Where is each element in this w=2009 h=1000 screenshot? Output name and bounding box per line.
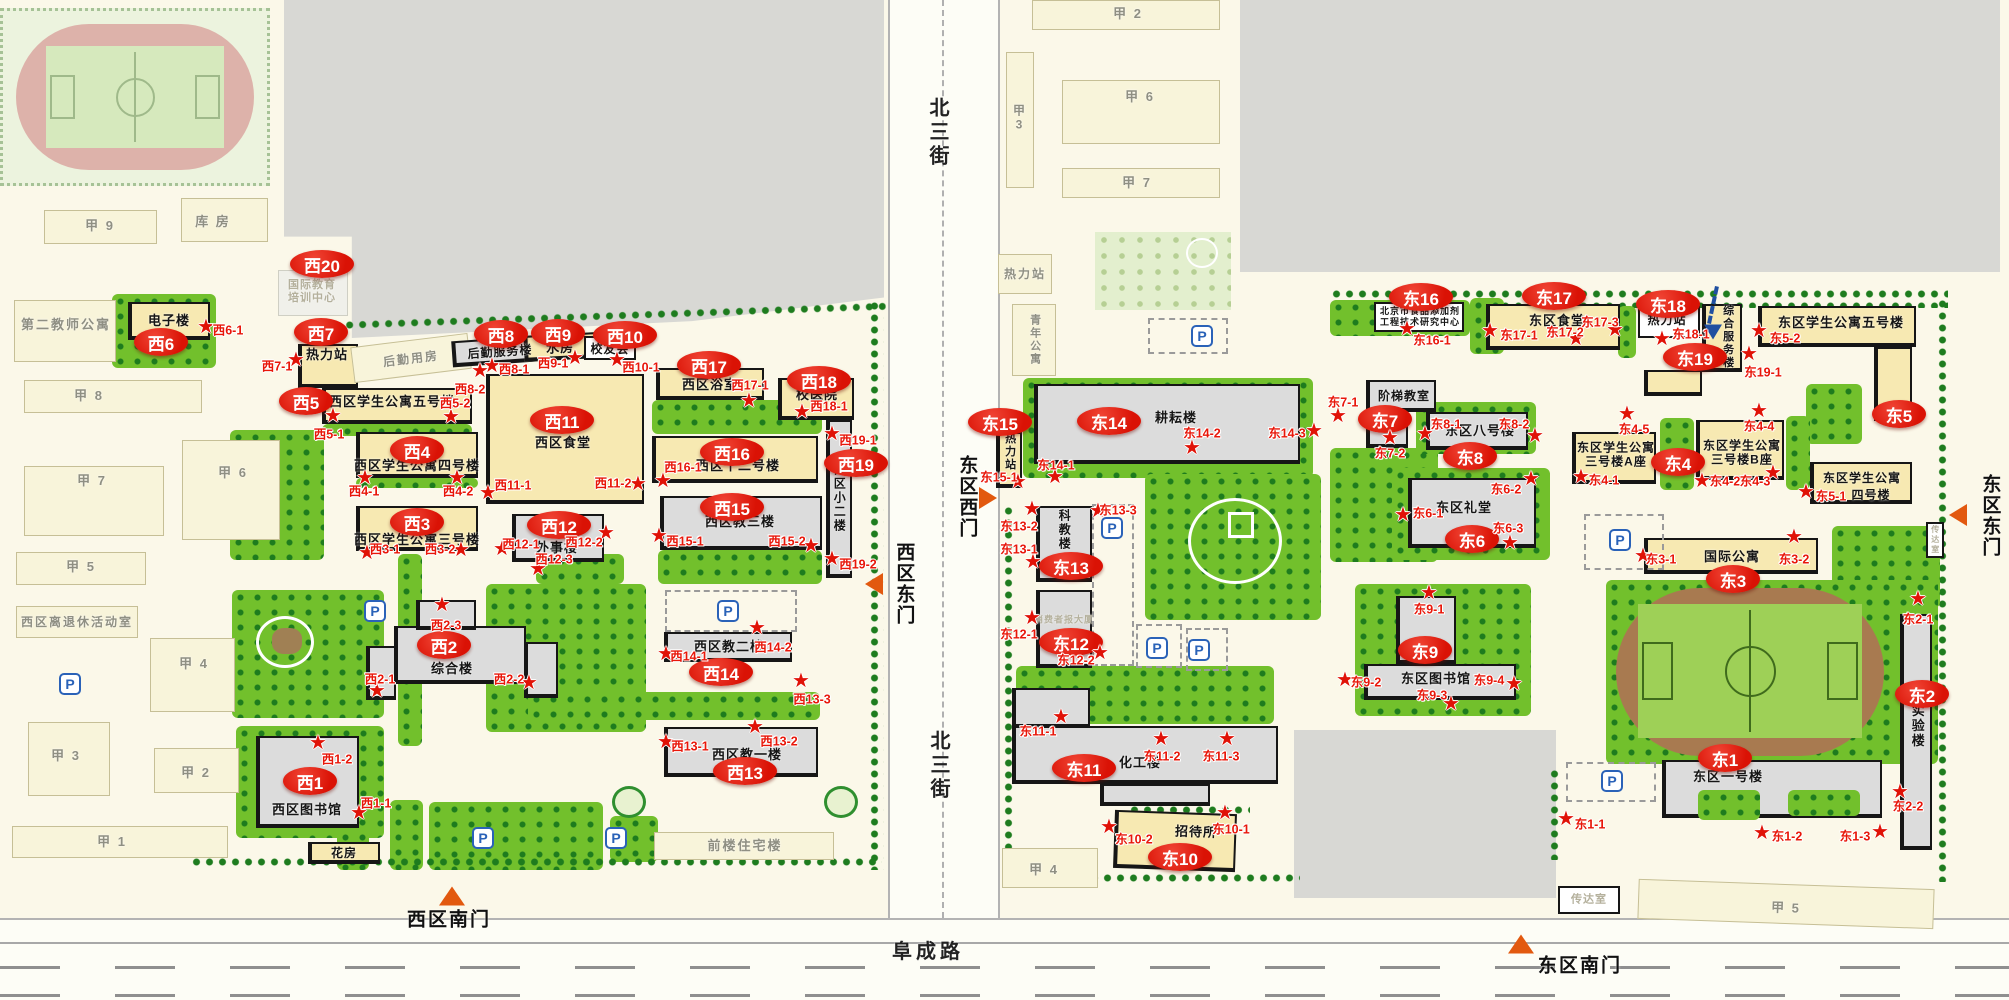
marker-star-东6-1: ★ — [1394, 505, 1412, 525]
marker-star-西2-3: ★ — [433, 595, 451, 615]
marker-label-东5-1: 东5-1 — [1816, 486, 1847, 505]
badge-东6: 东6 — [1445, 525, 1499, 553]
parking-icon: P — [1191, 325, 1213, 347]
parking-lot — [1148, 318, 1228, 354]
marker-label-东17-3: 东17-3 — [1581, 312, 1619, 331]
building-label: 实验楼 — [1909, 704, 1925, 749]
marker-label-东6-2: 东6-2 — [1491, 479, 1522, 498]
building-甲 6 — [182, 440, 280, 540]
marker-label-西15-1: 西15-1 — [666, 531, 704, 550]
marker-star-西9-1: ★ — [566, 348, 584, 368]
badge-东9: 东9 — [1398, 636, 1452, 664]
marker-label-西5-1: 西5-1 — [314, 424, 345, 443]
marker-label-东11-1: 东11-1 — [1020, 721, 1057, 740]
badge-西18: 西18 — [787, 366, 851, 394]
marker-label-东12-2: 东12-2 — [1057, 650, 1095, 669]
map-deco-ring — [1188, 498, 1282, 584]
building-label: 东区学生公寓 — [1823, 471, 1901, 485]
marker-label-西5-2: 西5-2 — [440, 393, 471, 412]
marker-star-东6-2: ★ — [1522, 469, 1540, 489]
building-label: 传达室 — [1571, 893, 1607, 906]
marker-star-东4-1: ★ — [1572, 467, 1590, 487]
badge-西9: 西9 — [531, 319, 585, 347]
building-label: 甲 4 — [1029, 862, 1059, 878]
parking-icon: P — [364, 600, 386, 622]
marker-label-东13-2: 东13-2 — [1000, 516, 1038, 535]
marker-label-东2-1: 东2-1 — [1903, 609, 1934, 628]
badge-西11: 西11 — [530, 406, 594, 434]
building-label: 东区礼堂 — [1436, 500, 1492, 516]
road-fuchenglu — [0, 918, 2009, 1000]
marker-star-东17-1: ★ — [1481, 321, 1499, 341]
green-area — [658, 550, 822, 584]
building-label: 甲 4 — [179, 656, 209, 672]
marker-label-东4-3: 东4-3 — [1740, 471, 1771, 490]
badge-西20: 西20 — [290, 250, 354, 278]
badge-西19: 西19 — [824, 449, 888, 477]
badge-西2: 西2 — [417, 631, 471, 659]
marker-label-西11-2: 西11-2 — [595, 473, 632, 492]
offsite-block — [284, 0, 884, 338]
building-label: 西区离退休活动室 — [21, 615, 133, 629]
marker-label-东1-1: 东1-1 — [1575, 814, 1606, 833]
badge-东5: 东5 — [1872, 400, 1926, 428]
building-label: 前楼住宅楼 — [707, 838, 782, 854]
marker-label-东7-2: 东7-2 — [1375, 443, 1406, 462]
marker-label-西14-1: 西14-1 — [670, 646, 708, 665]
building-label: 甲 5 — [66, 559, 96, 575]
marker-label-西2-1: 西2-1 — [365, 669, 396, 688]
building-label: 电子楼 — [148, 313, 190, 329]
building-label: 热力站 — [306, 347, 348, 363]
badge-东3: 东3 — [1706, 565, 1760, 593]
marker-label-西13-3: 西13-3 — [793, 689, 831, 708]
marker-label-东3-1: 东3-1 — [1646, 549, 1677, 568]
marker-label-东14-3: 东14-3 — [1268, 423, 1306, 442]
marker-label-东18-1: 东18-1 — [1672, 324, 1710, 343]
badge-西13: 西13 — [713, 757, 777, 785]
courtyard-green — [1788, 790, 1860, 816]
badge-东1: 东1 — [1698, 744, 1752, 772]
marker-label-西3-1: 西3-1 — [370, 539, 401, 558]
building-label: 甲 6 — [1125, 89, 1155, 105]
marker-label-西14-2: 西14-2 — [754, 637, 792, 656]
marker-label-东4-4: 东4-4 — [1744, 416, 1775, 435]
marker-label-东8-1: 东8-1 — [1431, 414, 1462, 433]
badge-东8: 东8 — [1443, 442, 1497, 470]
marker-star-东1-1: ★ — [1557, 809, 1575, 829]
parking-icon: P — [1601, 770, 1623, 792]
marker-label-东6-3: 东6-3 — [1493, 518, 1524, 537]
badge-西3: 西3 — [390, 508, 444, 536]
marker-label-西18-1: 西18-1 — [810, 396, 848, 415]
marker-label-西1-1: 西1-1 — [361, 793, 392, 812]
marker-label-西17-1: 西17-1 — [731, 375, 769, 394]
badge-东14: 东14 — [1077, 407, 1141, 435]
marker-label-西16-1: 西16-1 — [664, 457, 702, 476]
marker-label-东4-1: 东4-1 — [1589, 470, 1620, 489]
marker-label-东13-1: 东13-1 — [1000, 539, 1038, 558]
marker-label-东11-3: 东11-3 — [1203, 746, 1240, 765]
marker-star-东14-3: ★ — [1305, 421, 1323, 441]
parking-icon: P — [717, 600, 739, 622]
building-label: 综合楼 — [431, 661, 473, 677]
badge-西16: 西16 — [700, 438, 764, 466]
offsite-block — [1294, 730, 1556, 898]
marker-star-西18-1: ★ — [793, 402, 811, 422]
building-label: 西区食堂 — [535, 435, 591, 451]
gate-arrow-icon — [979, 487, 997, 509]
building-label: 科教楼 — [1057, 509, 1071, 551]
marker-label-西19-1: 西19-1 — [839, 430, 877, 449]
marker-label-西3-2: 西3-2 — [425, 539, 456, 558]
marker-label-东3-2: 东3-2 — [1779, 549, 1810, 568]
building-label: 甲 5 — [1771, 900, 1801, 917]
marker-label-西9-1: 西9-1 — [538, 353, 569, 372]
gate-arrow-icon — [1949, 504, 1967, 526]
marker-label-西11-1: 西11-1 — [495, 475, 532, 494]
parking-icon: P — [1188, 639, 1210, 661]
road-label-beisanjie: 北三街 — [925, 97, 949, 169]
gate-arrow-icon — [439, 887, 465, 906]
marker-label-东17-1: 东17-1 — [1500, 325, 1538, 344]
green-area — [1786, 416, 1810, 490]
marker-label-东7-1: 东7-1 — [1328, 392, 1359, 411]
building-label: 招待所 — [1175, 823, 1218, 840]
badge-东16: 东16 — [1389, 283, 1453, 311]
building-label: 消费者报大厦 — [1034, 615, 1094, 626]
building-label: 甲 7 — [77, 473, 107, 489]
parking-icon: P — [1146, 637, 1168, 659]
courtyard-green — [1698, 790, 1760, 820]
pitch-center-circle — [116, 78, 155, 117]
badge-西10: 西10 — [593, 321, 657, 349]
road-label-fuchenglu: 阜成路 — [892, 940, 964, 964]
parking-icon: P — [59, 673, 81, 695]
building — [1100, 784, 1210, 806]
road-dash-line — [0, 966, 2009, 969]
building-label: 花房 — [331, 846, 357, 860]
pitch-goal-box-right — [195, 75, 220, 120]
marker-label-西8-1: 西8-1 — [499, 359, 530, 378]
building-label: 甲 7 — [1122, 175, 1152, 191]
building-label: 国际公寓 — [1704, 549, 1760, 565]
building-label: 甲 6 — [218, 465, 248, 481]
marker-label-东4-2: 东4-2 — [1710, 471, 1741, 490]
marker-label-西12-3: 西12-3 — [535, 549, 573, 568]
badge-东11: 东11 — [1052, 754, 1116, 782]
badge-东17: 东17 — [1522, 282, 1586, 310]
map-deco-ring — [1186, 238, 1218, 268]
gate-label-东区西门: 东区西门 — [955, 455, 978, 539]
marker-star-西11-2: ★ — [629, 474, 647, 494]
marker-label-东19-1: 东19-1 — [1744, 362, 1782, 381]
marker-label-西7-1: 西7-1 — [262, 356, 293, 375]
badge-东15: 东15 — [968, 408, 1032, 436]
marker-label-东9-2: 东9-2 — [1351, 672, 1382, 691]
road-dash-line — [0, 994, 2009, 997]
marker-star-西14-2: ★ — [748, 618, 766, 638]
campus-map: PPPPPPPPPPP甲 9库 房国际教育 培训中心第二教师公寓甲 8甲 7甲 … — [0, 0, 2009, 1000]
marker-label-西1-2: 西1-2 — [322, 749, 353, 768]
marker-label-东2-2: 东2-2 — [1893, 796, 1924, 815]
badge-西4: 西4 — [390, 436, 444, 464]
building-label: 传达室 — [1930, 525, 1940, 555]
badge-西15: 西15 — [700, 493, 764, 521]
building-label: 甲 3 — [51, 748, 81, 764]
marker-label-东4-5: 东4-5 — [1619, 419, 1650, 438]
marker-label-东9-3: 东9-3 — [1417, 685, 1448, 704]
marker-label-东1-2: 东1-2 — [1772, 826, 1803, 845]
green-area — [1806, 384, 1862, 444]
pitch-center-circle — [1725, 646, 1776, 697]
map-deco-sqr — [1228, 512, 1254, 538]
building-label: 甲 2 — [181, 765, 211, 781]
road-label-beisanjie: 北三街 — [926, 730, 950, 802]
marker-label-东14-2: 东14-2 — [1183, 423, 1221, 442]
badge-东13: 东13 — [1039, 552, 1103, 580]
gate-arrow-icon — [865, 573, 883, 595]
pitch-goal-box-right — [1827, 642, 1858, 701]
parking-icon: P — [1609, 529, 1631, 551]
badge-西7: 西7 — [294, 318, 348, 346]
building-label: 甲 2 — [1113, 6, 1143, 22]
building-label: 甲 9 — [85, 218, 115, 234]
parking-icon: P — [472, 827, 494, 849]
gate-label-西区南门: 西区南门 — [407, 910, 491, 933]
marker-label-西4-1: 西4-1 — [349, 481, 380, 500]
offsite-block — [1240, 0, 2000, 272]
building-label: 西区浴室 — [682, 377, 738, 393]
marker-label-西6-1: 西6-1 — [213, 320, 244, 339]
marker-star-东5-1: ★ — [1797, 482, 1815, 502]
building-label: 甲 1 — [97, 834, 127, 850]
marker-label-东9-1: 东9-1 — [1414, 599, 1445, 618]
marker-label-东10-1: 东10-1 — [1212, 819, 1250, 838]
badge-西1: 西1 — [283, 767, 337, 795]
map-deco-ring — [824, 786, 858, 818]
gate-label-东区东门: 东区东门 — [1978, 474, 2001, 558]
marker-label-东15-1: 东15-1 — [980, 467, 1018, 486]
pitch-goal-box-left — [1642, 642, 1673, 701]
badge-东18: 东18 — [1636, 290, 1700, 318]
green-area — [528, 692, 820, 720]
marker-label-东13-3: 东13-3 — [1099, 500, 1137, 519]
marker-star-东1-3: ★ — [1871, 822, 1889, 842]
marker-label-东1-3: 东1-3 — [1840, 826, 1871, 845]
badge-西6: 西6 — [134, 328, 188, 356]
gate-label-西区东门: 西区东门 — [892, 542, 915, 626]
map-text: 四号楼 — [1851, 488, 1890, 502]
marker-label-西13-1: 西13-1 — [671, 736, 709, 755]
building-label: 热力站 — [1004, 267, 1046, 281]
marker-label-西12-1: 西12-1 — [502, 534, 540, 553]
marker-label-东11-2: 东11-2 — [1144, 746, 1181, 765]
map-deco-ring — [612, 786, 646, 818]
marker-star-东4-2: ★ — [1693, 471, 1711, 491]
marker-label-东17-2: 东17-2 — [1546, 322, 1584, 341]
building-label: 库 房 — [195, 214, 231, 230]
marker-label-东8-2: 东8-2 — [1499, 414, 1530, 433]
badge-东10: 东10 — [1148, 843, 1212, 871]
marker-star-东9-4: ★ — [1505, 674, 1523, 694]
gate-label-东区南门: 东区南门 — [1538, 956, 1622, 979]
badge-东19: 东19 — [1663, 343, 1727, 371]
building-label: 青年公寓 — [1027, 314, 1040, 366]
building-label: 阶梯教室 — [1378, 389, 1430, 403]
marker-label-东14-1: 东14-1 — [1037, 455, 1075, 474]
badge-东2: 东2 — [1895, 680, 1949, 708]
marker-label-西10-1: 西10-1 — [622, 357, 660, 376]
pitch-goal-box-left — [50, 75, 75, 120]
badge-西8: 西8 — [474, 320, 528, 348]
marker-label-东16-1: 东16-1 — [1413, 330, 1451, 349]
building-label: 甲 8 — [74, 388, 104, 404]
building-label: 第二教师公寓 — [21, 317, 111, 333]
marker-star-东3-2: ★ — [1785, 527, 1803, 547]
marker-star-东5-2: ★ — [1750, 321, 1768, 341]
building-label: 西区图书馆 — [272, 802, 342, 818]
marker-label-西2-3: 西2-3 — [431, 615, 462, 634]
building-甲 8 — [24, 380, 202, 413]
marker-label-西15-2: 西15-2 — [768, 531, 806, 550]
building-label: 国际教育 培训中心 — [288, 279, 336, 305]
building-甲 4 — [150, 638, 235, 712]
map-deco-blob — [272, 628, 302, 654]
building — [1644, 370, 1702, 396]
marker-star-西17-1: ★ — [740, 391, 758, 411]
parking-icon: P — [605, 827, 627, 849]
marker-star-东1-2: ★ — [1753, 823, 1771, 843]
marker-label-东12-1: 东12-1 — [1000, 624, 1038, 643]
road-lane-line — [0, 942, 2009, 944]
marker-label-东9-4: 东9-4 — [1474, 670, 1505, 689]
marker-label-西4-2: 西4-2 — [443, 481, 474, 500]
marker-label-东10-2: 东10-2 — [1115, 829, 1153, 848]
marker-label-东6-1: 东6-1 — [1413, 503, 1444, 522]
building-label: 西区学生公寓五号楼 — [329, 394, 455, 410]
marker-label-西19-2: 西19-2 — [839, 554, 877, 573]
gate-arrow-icon — [1508, 935, 1534, 954]
marker-star-东2-1: ★ — [1909, 589, 1927, 609]
building-label: 甲 3 — [1013, 104, 1027, 133]
marker-label-西13-2: 西13-2 — [760, 731, 798, 750]
marker-label-西2-2: 西2-2 — [494, 669, 525, 688]
marker-label-东5-2: 东5-2 — [1770, 328, 1801, 347]
marker-star-东18-1: ★ — [1653, 329, 1671, 349]
